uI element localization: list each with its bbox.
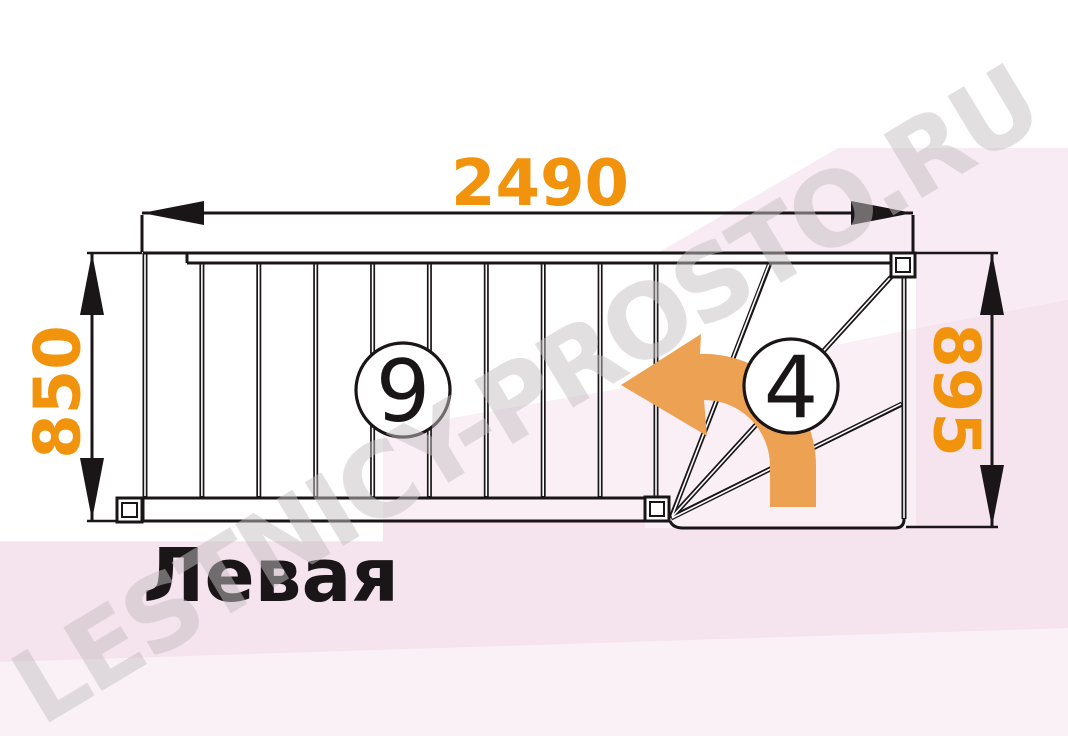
dimension-length-value: 2490 bbox=[451, 147, 629, 221]
dimension-width-right-value: 895 bbox=[919, 323, 993, 457]
staircase-floor-plan: 2490 850 895 9 4 Ле bbox=[0, 0, 1068, 736]
newel-post-winder-pivot-inner bbox=[650, 502, 664, 516]
diagram-canvas: 2490 850 895 9 4 Ле bbox=[0, 0, 1068, 736]
dimension-left-arrow-up bbox=[80, 253, 104, 315]
dimension-width-left: 850 bbox=[21, 253, 142, 521]
dimension-length-arrow-left bbox=[142, 201, 204, 225]
dimension-left-arrow-down bbox=[80, 458, 104, 520]
newel-post-bottom-left-inner bbox=[122, 503, 137, 517]
dimension-width-left-value: 850 bbox=[21, 325, 95, 459]
winder-steps-count-value: 4 bbox=[764, 338, 819, 438]
newel-post-top-right-inner bbox=[896, 258, 910, 272]
